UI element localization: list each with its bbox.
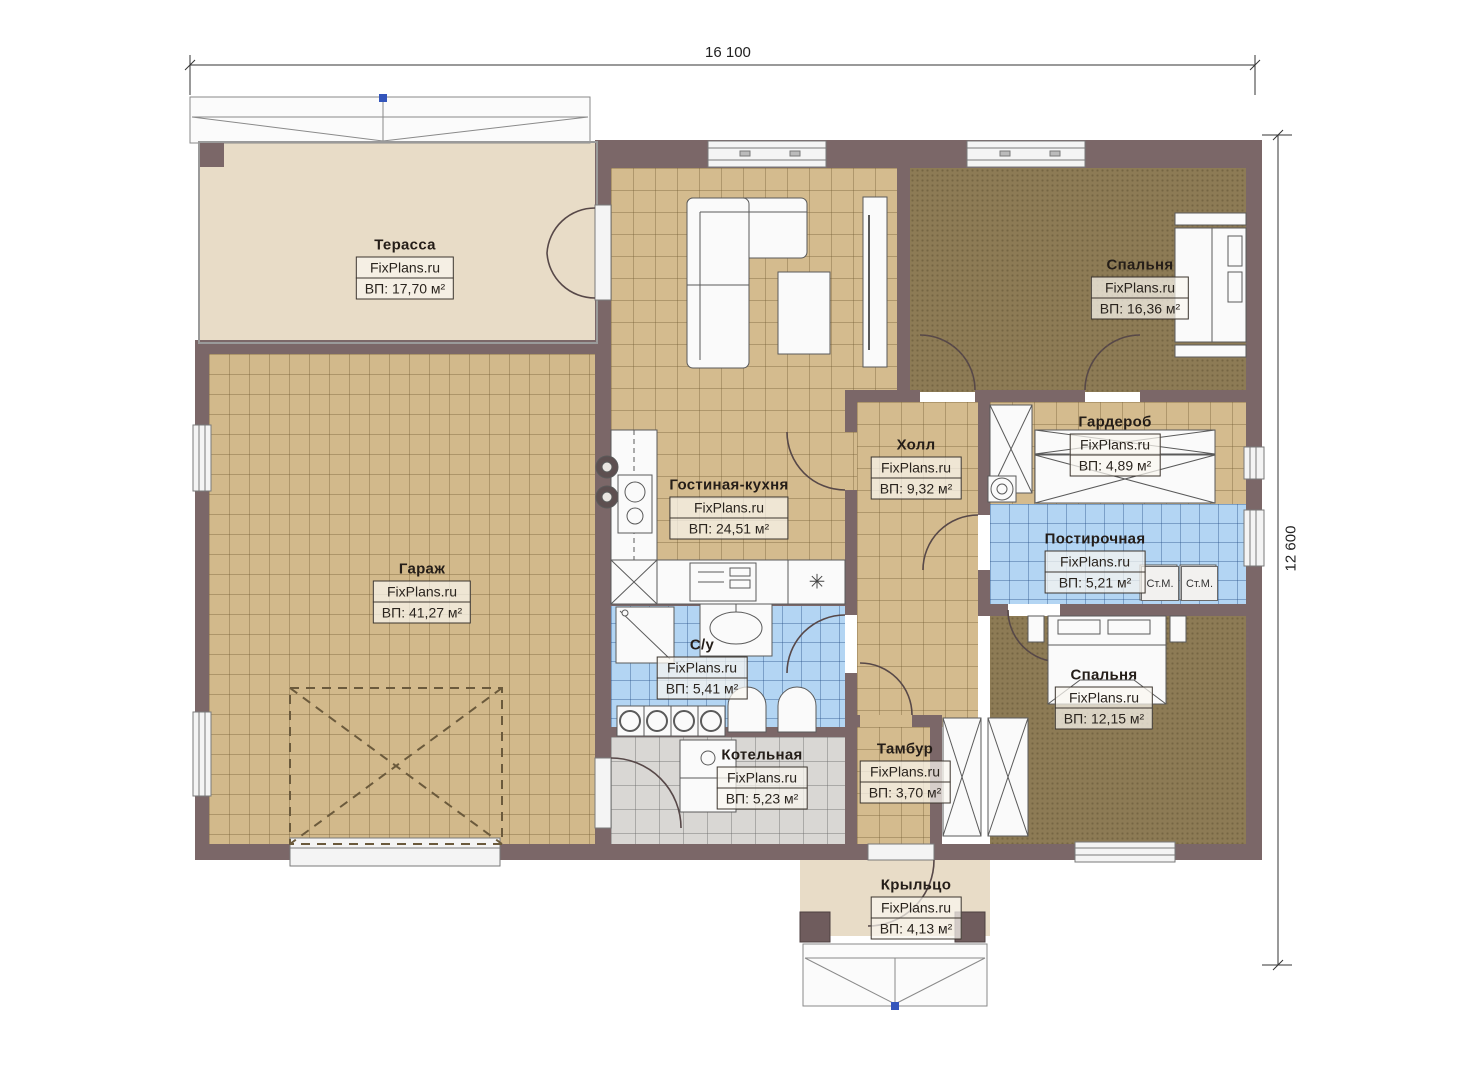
tv-stand [863,197,887,367]
hall-living-door-arc [787,432,845,490]
garage-boiler-door-arc [611,758,681,828]
bedroom-bottom-window [1075,842,1175,862]
garage-window-2 [193,712,211,796]
watermark: FixPlans.ru [871,897,962,919]
room-area: ВП: 41,27 м² [373,602,471,624]
watermark: FixPlans.ru [871,457,962,479]
room-area: ВП: 17,70 м² [356,278,454,300]
terrace-door-leaf-2 [547,253,595,298]
tambour-door-gap [860,715,912,727]
entry-door-opening [868,844,934,860]
wardrobe-window [1244,447,1264,479]
room-area: ВП: 16,36 м² [1091,298,1189,320]
plan-drawing [0,0,1474,1080]
room-name: Постирочная [1045,531,1146,548]
porch-steps [803,944,987,1010]
watermark: FixPlans.ru [373,581,471,603]
floor-plan-canvas: 16 100 12 600 Терасса FixPlans.ru ВП: 17… [0,0,1474,1080]
room-name: Терасса [356,237,454,254]
garage-window-1 [193,425,211,491]
room-label-tambour: Тамбур FixPlans.ru ВП: 3,70 м² [860,741,951,804]
room-area: ВП: 4,89 м² [1070,455,1161,477]
room-label-bedroom-bottom: Спальня FixPlans.ru ВП: 12,15 м² [1055,667,1153,730]
room-name: Гараж [373,561,471,578]
room-area: ВП: 24,51 м² [669,518,788,540]
terrace-door-leaf-1 [547,208,595,253]
watermark: FixPlans.ru [1045,551,1146,573]
room-name: Спальня [1091,257,1189,274]
coffee-table [778,272,830,354]
dimension-width-label: 16 100 [705,44,751,61]
living-room-window [708,141,826,167]
roof-axis-marker [379,94,387,102]
room-label-bedroom-top: Спальня FixPlans.ru ВП: 16,36 м² [1091,257,1189,320]
laundry-window [1244,510,1264,566]
watermark: FixPlans.ru [1055,687,1153,709]
room-label-garage: Гараж FixPlans.ru ВП: 41,27 м² [373,561,471,624]
room-name: Тамбур [860,741,951,758]
room-area: ВП: 5,23 м² [717,788,808,810]
watermark: FixPlans.ru [1091,277,1189,299]
room-name: Крыльцо [871,877,962,894]
room-label-bathroom: С/у FixPlans.ru ВП: 5,41 м² [657,637,748,700]
room-name: Котельная [717,747,808,764]
fridge-icon: ✳ [809,570,826,595]
room-name: Гардероб [1070,414,1161,431]
watermark: FixPlans.ru [1070,434,1161,456]
washing-machine-2: Ст.М. [1181,566,1218,601]
room-name: С/у [657,637,748,654]
washing-machine-1: Ст.М. [1141,566,1179,601]
garage-boiler-door-opening [595,758,611,828]
watermark: FixPlans.ru [860,761,951,783]
dimension-height-label: 12 600 [1282,526,1299,572]
room-area: ВП: 4,13 м² [871,918,962,940]
room-area: ВП: 9,32 м² [871,478,962,500]
terrace-door-opening [595,205,611,300]
room-label-laundry: Постирочная FixPlans.ru ВП: 5,21 м² [1045,531,1146,594]
bedroom-top-window [967,141,1085,167]
wardrobe-bedroom-door-arc [1085,335,1140,390]
room-area: ВП: 5,21 м² [1045,572,1146,594]
room-area: ВП: 12,15 м² [1055,708,1153,730]
watermark: FixPlans.ru [356,257,454,279]
water-heater [988,476,1016,502]
room-label-hall: Холл FixPlans.ru ВП: 9,32 м² [871,437,962,500]
watermark: FixPlans.ru [717,767,808,789]
room-area: ВП: 5,41 м² [657,678,748,700]
room-area: ВП: 3,70 м² [860,782,951,804]
watermark: FixPlans.ru [669,497,788,519]
watermark: FixPlans.ru [657,657,748,679]
room-label-wardrobe: Гардероб FixPlans.ru ВП: 4,89 м² [1070,414,1161,477]
garage-parking-marker [290,688,502,844]
appliance-row [617,706,725,736]
room-name: Холл [871,437,962,454]
room-name: Гостиная-кухня [669,477,788,494]
laundry-door-arc [923,515,978,570]
room-label-terrace: Терасса FixPlans.ru ВП: 17,70 м² [356,237,454,300]
room-name: Спальня [1055,667,1153,684]
hall-closets [943,718,1028,836]
room-label-porch: Крыльцо FixPlans.ru ВП: 4,13 м² [871,877,962,940]
tambour-door-arc [860,663,912,715]
terrace-roof-overhang [190,94,590,143]
garage-gate [290,838,500,866]
bedroom-top-door-arc [920,335,975,390]
room-label-boiler: Котельная FixPlans.ru ВП: 5,23 м² [717,747,808,810]
room-label-living-kitchen: Гостиная-кухня FixPlans.ru ВП: 24,51 м² [669,477,788,540]
porch-axis-marker [891,1002,899,1010]
bathroom-door-arc [787,615,845,673]
